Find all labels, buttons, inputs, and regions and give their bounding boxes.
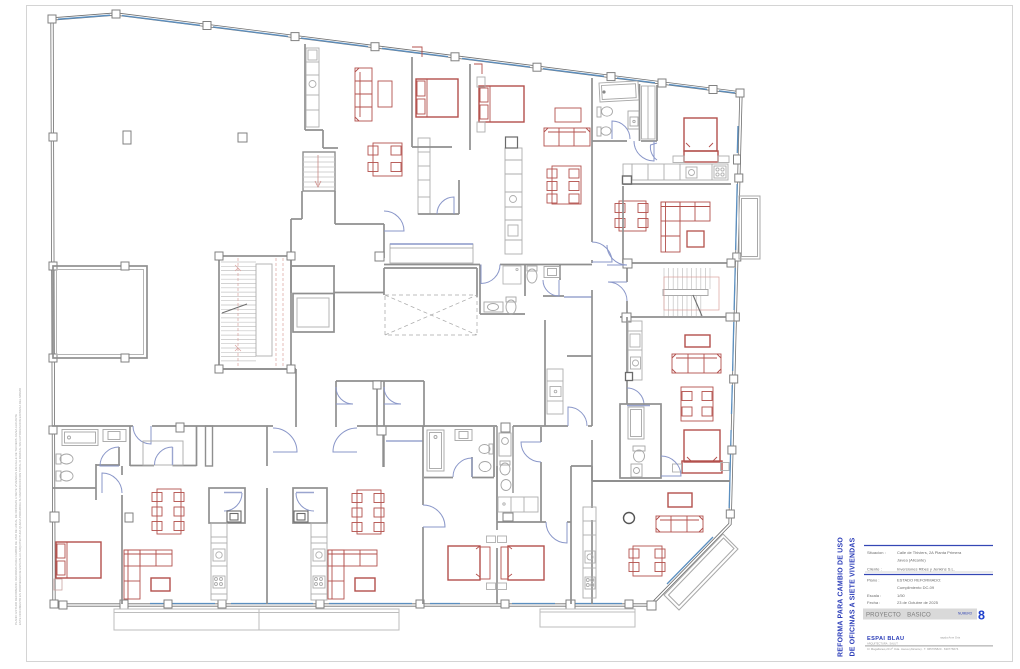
svg-text:1/50: 1/50 — [897, 593, 906, 598]
svg-text:Javea (Alicante): Javea (Alicante) — [897, 558, 926, 563]
svg-text:napda Arve Grts: napda Arve Grts — [940, 636, 961, 640]
svg-text:NUMERO: NUMERO — [958, 612, 973, 616]
svg-text:Calle de Thiviers, 2A Planta P: Calle de Thiviers, 2A Planta Primera — [897, 550, 962, 555]
svg-text:Escala :: Escala : — [867, 593, 881, 598]
svg-text:Cumplimiento DC-09: Cumplimiento DC-09 — [897, 585, 935, 590]
svg-text:Fecha :: Fecha : — [867, 600, 880, 605]
svg-text:8: 8 — [978, 609, 985, 623]
svg-text:REFORMA PARA CAMBIO DE USO: REFORMA PARA CAMBIO DE USO — [838, 537, 845, 657]
svg-text:ESPAI BLAU: ESPAI BLAU — [867, 636, 904, 642]
svg-text:Plano :: Plano : — [867, 578, 879, 583]
svg-text:ARQUITECTURA . SALUT: ARQUITECTURA . SALUT — [867, 642, 898, 646]
svg-text:Inversiones Ribes y Jenkins S.: Inversiones Ribes y Jenkins S.L. — [897, 567, 955, 572]
svg-text:23 de Octubre de 2025: 23 de Octubre de 2025 — [897, 600, 939, 605]
svg-text:Situacion :: Situacion : — [867, 550, 886, 555]
svg-text:PROYECTO BASICO: PROYECTO BASICO — [866, 612, 931, 619]
svg-text:DE OFICINAS A SIETE VIVIENDAS: DE OFICINAS A SIETE VIVIENDAS — [850, 537, 857, 656]
svg-text:Cliente :: Cliente : — [867, 567, 882, 572]
svg-text:ESTADO REFORMADO:: ESTADO REFORMADO: — [897, 578, 941, 583]
svg-text:ESTE DOCUMENTO ES PROPIEDAD DE: ESTE DOCUMENTO ES PROPIEDAD DE ESPAI BLA… — [18, 387, 22, 625]
svg-text:C/ Magallanes,20 2º Izda. Jave: C/ Magallanes,20 2º Izda. Javea (Alicant… — [867, 647, 959, 651]
